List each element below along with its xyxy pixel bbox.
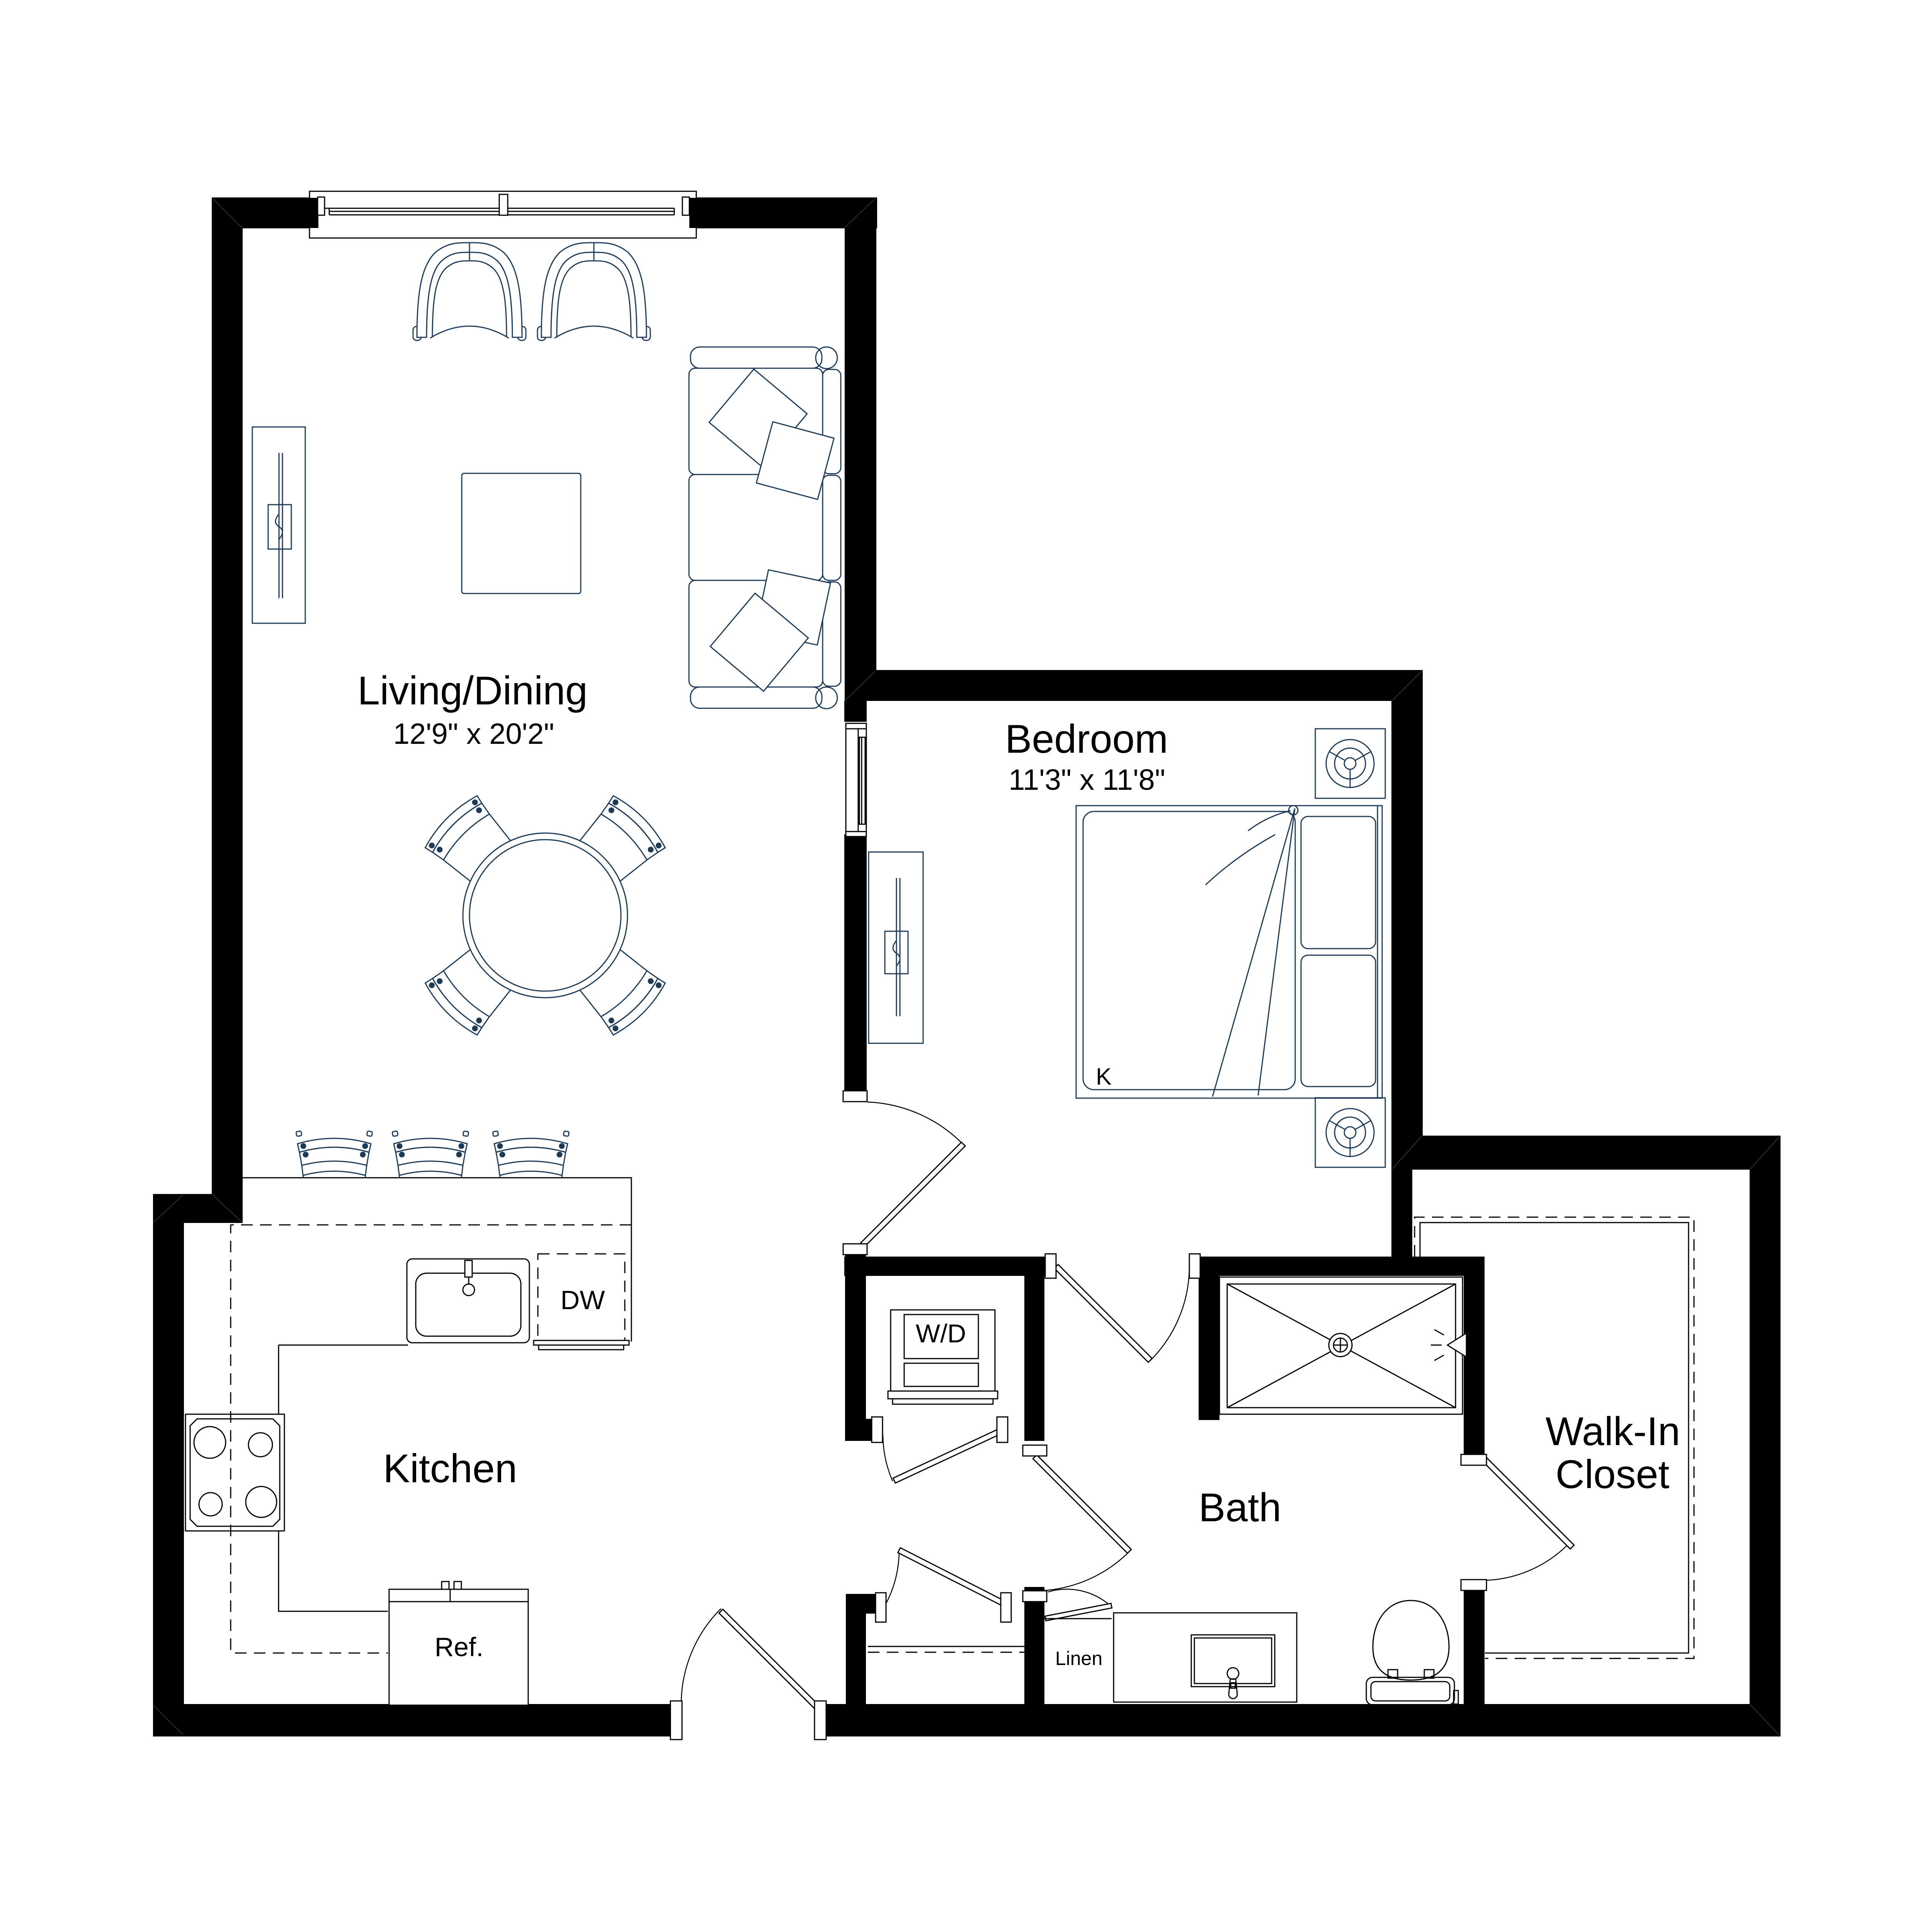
svg-text:Kitchen: Kitchen xyxy=(383,1446,517,1491)
svg-text:Closet: Closet xyxy=(1556,1452,1670,1497)
svg-text:Walk-In: Walk-In xyxy=(1546,1409,1680,1454)
svg-text:12'9" x 20'2": 12'9" x 20'2" xyxy=(393,718,554,750)
svg-text:Living/Dining: Living/Dining xyxy=(357,668,587,713)
svg-text:Linen: Linen xyxy=(1055,1648,1102,1669)
svg-text:W/D: W/D xyxy=(916,1319,966,1348)
svg-text:K: K xyxy=(1096,1063,1112,1090)
svg-text:Bedroom: Bedroom xyxy=(1005,717,1168,762)
svg-text:Ref.: Ref. xyxy=(435,1632,484,1662)
svg-text:11'3" x 11'8": 11'3" x 11'8" xyxy=(1009,764,1165,796)
svg-text:Bath: Bath xyxy=(1199,1485,1281,1530)
svg-text:DW: DW xyxy=(561,1285,605,1315)
